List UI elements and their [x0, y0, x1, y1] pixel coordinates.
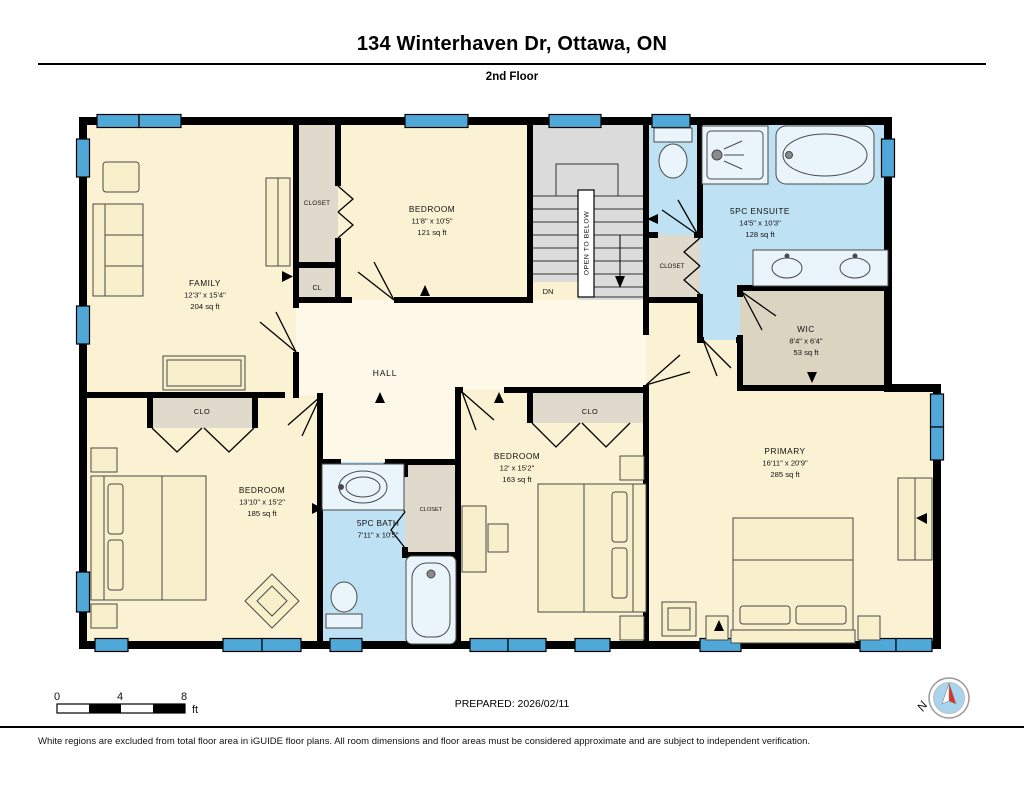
nightstand: [620, 456, 644, 480]
label-hall: HALL: [373, 368, 397, 378]
headboard: [91, 476, 104, 600]
pillow: [108, 484, 123, 534]
label-bedroom-left-area: 185 sq ft: [247, 509, 277, 518]
chair: [662, 602, 696, 636]
window: [223, 639, 262, 652]
window: [262, 639, 301, 652]
sink: [840, 258, 870, 278]
sofa: [93, 204, 143, 296]
toilet-bowl: [659, 144, 687, 178]
window: [97, 115, 139, 128]
pillow: [612, 548, 627, 598]
floor-plan-page: 134 Winterhaven Dr, Ottawa, ON 2nd Floor: [0, 0, 1024, 791]
sink: [772, 258, 802, 278]
label-closet-mid: CLOSET: [660, 263, 685, 270]
floor-plan: FAMILY 12'3" x 15'4" 204 sq ft CLOSET CL…: [0, 0, 1024, 791]
window: [77, 306, 90, 344]
toilet-bowl: [331, 582, 357, 612]
compass-icon: N: [905, 674, 985, 726]
label-primary-area: 285 sq ft: [770, 470, 800, 479]
label-wic: WIC: [797, 324, 815, 334]
label-bedroom-left-dims: 13'10" x 15'2": [239, 498, 285, 507]
label-clo-right: CLO: [582, 407, 598, 416]
label-primary-dims: 16'11" x 20'9": [762, 459, 808, 468]
headboard: [731, 630, 855, 643]
label-bedroom-mid: BEDROOM: [494, 451, 540, 461]
label-closet-bath: CLOSET: [420, 507, 443, 513]
window: [95, 639, 128, 652]
label-family-area: 204 sq ft: [190, 302, 220, 311]
room-cl: [296, 265, 338, 300]
window: [77, 139, 90, 177]
label-bedroom-mid-dims: 12' x 15'2": [500, 464, 535, 473]
room-closet-top: [296, 121, 338, 265]
label-bedroom-top: BEDROOM: [409, 204, 455, 214]
bathtub: [406, 556, 456, 644]
nightstand: [91, 604, 117, 628]
label-family: FAMILY: [189, 278, 221, 288]
label-bedroom-mid-area: 163 sq ft: [502, 475, 532, 484]
pillow: [612, 492, 627, 542]
headboard: [633, 484, 646, 612]
armchair: [103, 162, 139, 192]
compass-n-label: N: [914, 698, 931, 713]
stair-landing: [530, 282, 578, 300]
window: [77, 572, 90, 612]
pillow: [108, 540, 123, 590]
window: [931, 427, 944, 460]
label-bedroom-top-dims: 11'8" x 10'5": [411, 217, 452, 226]
label-ensuite: 5PC ENSUITE: [730, 206, 790, 216]
nightstand: [91, 448, 117, 472]
label-ensuite-dims: 14'5" x 10'3": [739, 219, 781, 228]
footer-divider: [0, 726, 1024, 728]
window: [405, 115, 468, 128]
label-wic-dims: 8'4" x 6'4": [789, 337, 823, 346]
label-family-dims: 12'3" x 15'4": [184, 291, 226, 300]
window: [882, 139, 895, 177]
label-wic-area: 53 sq ft: [794, 348, 820, 357]
label-dn: DN: [543, 287, 554, 296]
window: [508, 639, 546, 652]
label-cl: CL: [313, 285, 322, 292]
label-closet-top: CLOSET: [304, 200, 330, 207]
window: [575, 639, 610, 652]
shower-head-icon: [712, 150, 722, 160]
label-bath-dims: 7'11" x 10'5": [357, 531, 398, 540]
dresser: [163, 356, 245, 390]
prepared-date: PREPARED: 2026/02/11: [0, 698, 1024, 710]
desk: [462, 506, 486, 572]
label-open-to-below: OPEN TO BELOW: [584, 211, 591, 276]
disclaimer-text: White regions are excluded from total fl…: [38, 736, 1004, 747]
label-ensuite-area: 128 sq ft: [745, 230, 775, 239]
window: [330, 639, 362, 652]
chair: [488, 524, 508, 552]
window: [549, 115, 601, 128]
room-ensuite-entry: [700, 288, 740, 340]
toilet-tank: [654, 128, 692, 142]
toilet-tank: [326, 614, 362, 628]
label-primary: PRIMARY: [764, 446, 805, 456]
pillow: [796, 606, 846, 624]
window: [470, 639, 508, 652]
window: [896, 639, 932, 652]
label-clo-left: CLO: [194, 407, 210, 416]
pillow: [740, 606, 790, 624]
nightstand: [858, 616, 880, 640]
window: [139, 115, 181, 128]
nightstand: [620, 616, 644, 640]
window: [652, 115, 690, 128]
label-bedroom-left: BEDROOM: [239, 485, 285, 495]
window: [931, 394, 944, 427]
label-bedroom-top-area: 121 sq ft: [417, 228, 447, 237]
label-bath: 5PC BATH: [357, 518, 399, 528]
